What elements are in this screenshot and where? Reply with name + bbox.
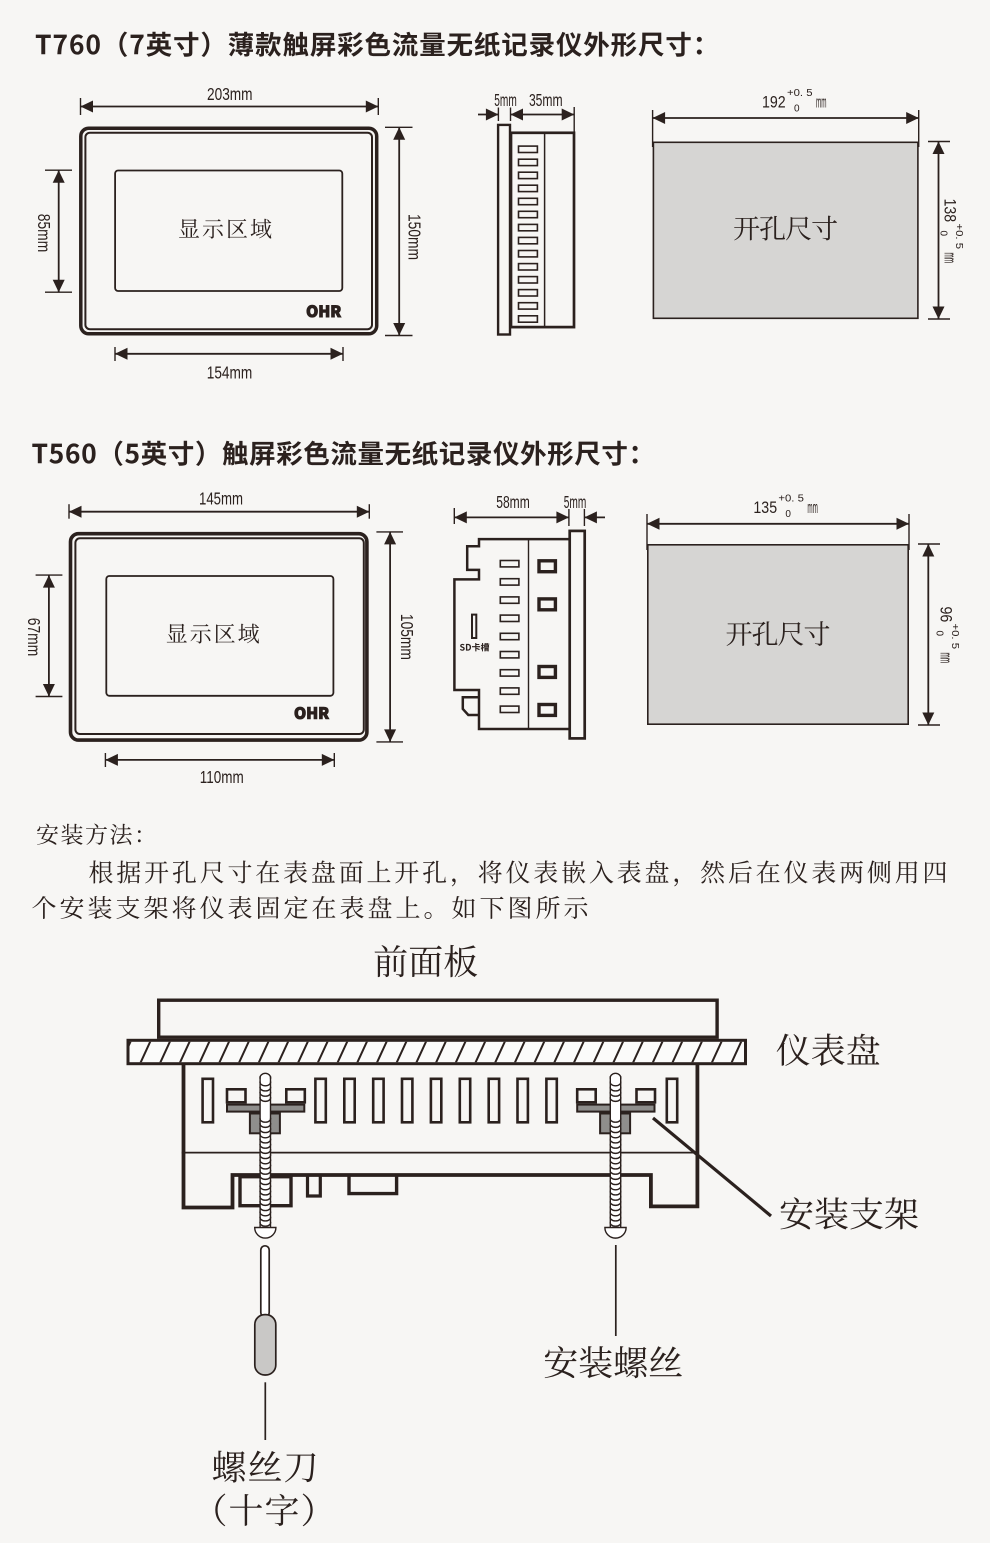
svg-text:mm: mm [807, 499, 818, 517]
svg-text:85mm: 85mm [34, 214, 54, 253]
svg-text:192: 192 [762, 93, 786, 111]
svg-text:150mm: 150mm [405, 214, 425, 260]
svg-text:203mm: 203mm [207, 84, 253, 104]
svg-text:0: 0 [934, 631, 945, 637]
svg-text:58mm: 58mm [496, 492, 530, 512]
svg-text:0: 0 [785, 509, 791, 520]
svg-text:mm: mm [937, 653, 955, 664]
svg-text:96: 96 [937, 607, 955, 623]
svg-text:mm: mm [941, 253, 959, 264]
svg-text:105mm: 105mm [397, 614, 417, 660]
svg-text:145mm: 145mm [199, 489, 243, 509]
svg-text:5mm: 5mm [564, 492, 587, 512]
svg-text:+0. 5: +0. 5 [778, 493, 804, 504]
svg-text:67mm: 67mm [24, 618, 44, 657]
svg-text:+0. 5: +0. 5 [953, 224, 964, 250]
svg-text:35mm: 35mm [529, 90, 563, 110]
svg-text:110mm: 110mm [200, 767, 244, 787]
svg-text:0: 0 [938, 231, 949, 237]
svg-text:0: 0 [794, 103, 800, 114]
svg-text:138: 138 [941, 199, 959, 223]
svg-text:154mm: 154mm [207, 363, 253, 383]
svg-text:135: 135 [753, 499, 777, 517]
svg-text:+0. 5: +0. 5 [949, 624, 960, 650]
svg-text:mm: mm [816, 93, 827, 111]
svg-text:5mm: 5mm [494, 90, 517, 110]
svg-text:+0. 5: +0. 5 [787, 88, 813, 99]
